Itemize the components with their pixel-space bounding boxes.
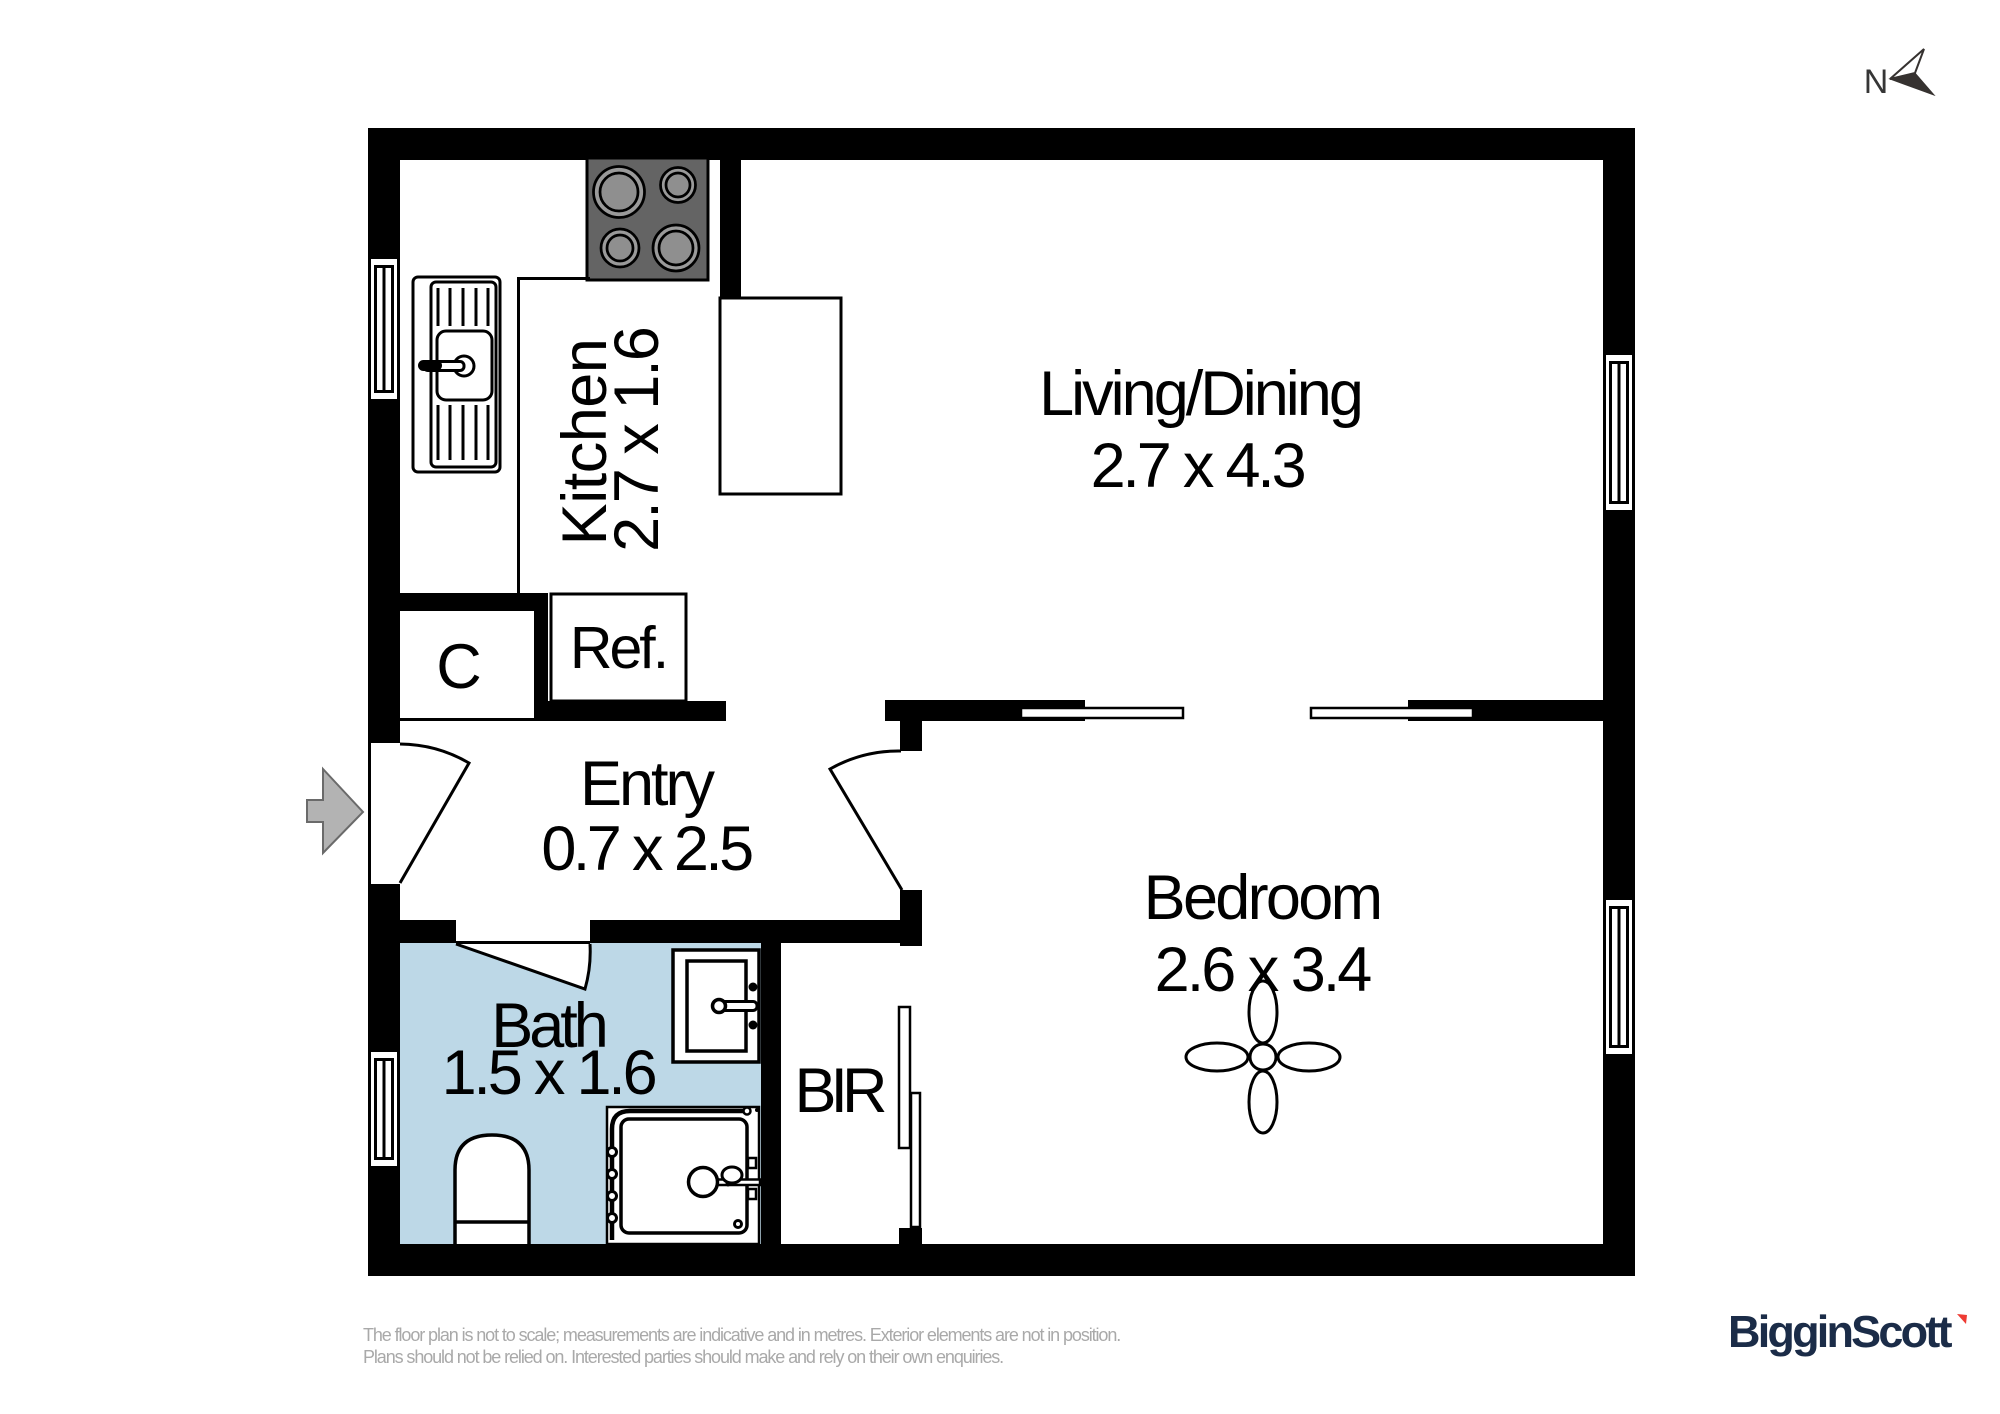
svg-text:2.6 x 3.4: 2.6 x 3.4 [1155, 935, 1372, 1005]
svg-text:2.7 x 1.6: 2.7 x 1.6 [602, 328, 672, 552]
svg-text:BigginScott: BigginScott [1728, 1306, 1952, 1357]
svg-text:N: N [1864, 63, 1889, 101]
svg-text:BIR: BIR [794, 1056, 885, 1126]
svg-text:Ref.: Ref. [570, 615, 666, 681]
svg-text:0.7 x 2.5: 0.7 x 2.5 [541, 814, 752, 884]
svg-text:1.5 x 1.6: 1.5 x 1.6 [442, 1038, 656, 1108]
svg-text:Plans should not be relied on.: Plans should not be relied on. Intereste… [363, 1347, 1003, 1367]
svg-text:C: C [436, 632, 482, 702]
svg-text:Bedroom: Bedroom [1144, 863, 1381, 933]
svg-text:2.7 x 4.3: 2.7 x 4.3 [1091, 431, 1305, 501]
svg-text:Entry: Entry [580, 749, 716, 819]
svg-text:The floor plan is not to scale: The floor plan is not to scale; measurem… [363, 1325, 1120, 1345]
svg-text:Living/Dining: Living/Dining [1039, 359, 1361, 429]
